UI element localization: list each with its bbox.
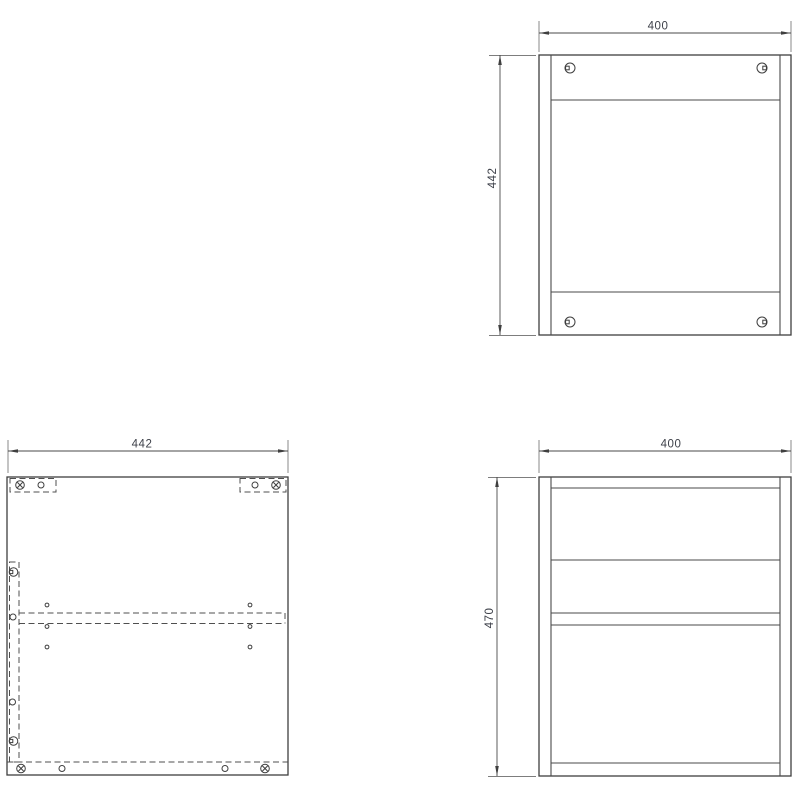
carcass-outline bbox=[539, 477, 791, 776]
cam-screw-icon bbox=[565, 317, 575, 327]
cabinet-front-elevation-view: 400 470 bbox=[484, 439, 791, 777]
hidden-rail-outline bbox=[10, 479, 56, 493]
cross-screw-icon bbox=[261, 764, 270, 773]
dimension-label: 442 bbox=[132, 439, 153, 451]
dowel-hole-icon bbox=[252, 482, 258, 488]
cross-screw-icon bbox=[17, 764, 26, 773]
dimension-label: 442 bbox=[487, 168, 499, 189]
arrowhead bbox=[498, 55, 502, 65]
height-dimension: 470 bbox=[484, 477, 536, 777]
arrowhead bbox=[539, 449, 549, 453]
arrowhead bbox=[539, 31, 549, 35]
cam-screw-icon bbox=[757, 63, 767, 73]
cross-screw-icon bbox=[272, 481, 281, 490]
arrowhead bbox=[781, 449, 791, 453]
arrowhead bbox=[278, 449, 288, 453]
width-dimension: 400 bbox=[539, 439, 791, 474]
arrowhead bbox=[498, 325, 502, 335]
panel-outline bbox=[539, 55, 791, 335]
dowel-hole-icon bbox=[222, 766, 228, 772]
dimension-label: 400 bbox=[648, 21, 669, 33]
cam-screw-icon bbox=[565, 63, 575, 73]
cam-screw-icon bbox=[757, 317, 767, 327]
dowel-hole-icon bbox=[10, 699, 16, 705]
dowel-hole-icon bbox=[38, 482, 44, 488]
dimension-label: 470 bbox=[484, 608, 496, 629]
technical-drawing-canvas: 400 442 bbox=[0, 0, 800, 800]
drawing-svg: 400 442 bbox=[0, 0, 800, 800]
cam-screw-icon bbox=[9, 737, 18, 746]
arrowhead bbox=[495, 477, 499, 487]
pilot-hole-icon bbox=[45, 645, 49, 649]
cam-screw-icon bbox=[9, 568, 18, 577]
pilot-hole-icon bbox=[248, 603, 252, 607]
top-panel-front-view: 400 442 bbox=[487, 21, 791, 336]
height-dimension: 442 bbox=[487, 55, 536, 336]
pilot-hole-icon bbox=[248, 625, 252, 629]
side-panel-inside-view: 442 bbox=[7, 439, 288, 776]
width-dimension: 442 bbox=[8, 439, 288, 474]
hidden-rail-outline bbox=[240, 479, 286, 493]
cross-screw-icon bbox=[16, 481, 25, 490]
arrowhead bbox=[781, 31, 791, 35]
dimension-label: 400 bbox=[661, 439, 682, 451]
pilot-hole-icon bbox=[248, 645, 252, 649]
pilot-hole-icon bbox=[45, 603, 49, 607]
width-dimension: 400 bbox=[539, 21, 791, 53]
dowel-hole-icon bbox=[59, 766, 65, 772]
arrowhead bbox=[495, 766, 499, 776]
pilot-hole-icon bbox=[45, 625, 49, 629]
arrowhead bbox=[8, 449, 18, 453]
hidden-stile-outline bbox=[10, 562, 20, 762]
dowel-hole-icon bbox=[10, 614, 16, 620]
